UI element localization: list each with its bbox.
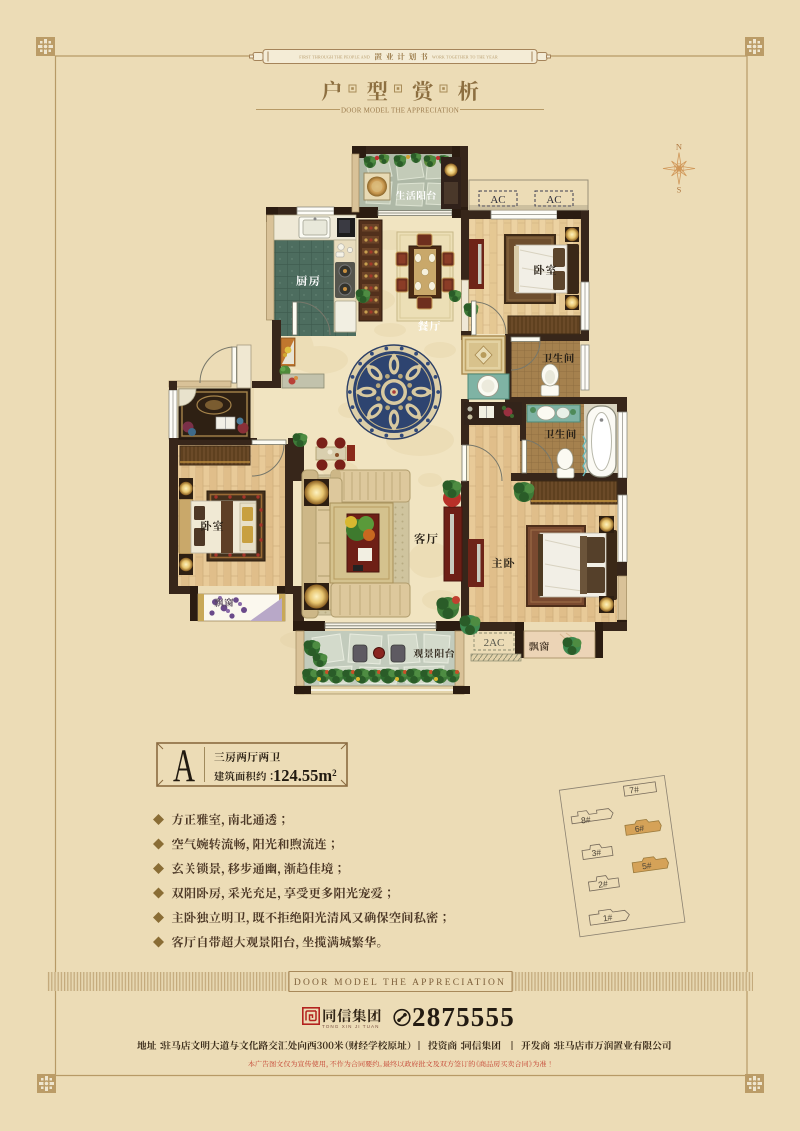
svg-text:8#: 8#	[580, 814, 591, 825]
svg-text:2#: 2#	[597, 878, 608, 889]
svg-text:2AC: 2AC	[484, 637, 505, 649]
svg-text:2875555: 2875555	[412, 1002, 515, 1032]
svg-text:A: A	[173, 740, 195, 792]
svg-text:124.55m2: 124.55m2	[273, 766, 337, 785]
svg-text:FIRST THROUGH THE PEOPLE AND: FIRST THROUGH THE PEOPLE AND	[299, 55, 370, 60]
svg-text:DOOR MODEL THE APPRECIATION: DOOR MODEL THE APPRECIATION	[341, 107, 459, 115]
svg-text:S: S	[677, 185, 682, 195]
svg-text:7#: 7#	[629, 784, 640, 795]
svg-text:DOOR MODEL THE APPRECIATION: DOOR MODEL THE APPRECIATION	[294, 978, 506, 988]
svg-text:5#: 5#	[641, 860, 652, 871]
svg-text:AC: AC	[490, 194, 505, 206]
svg-text:3#: 3#	[591, 847, 602, 858]
svg-text:N: N	[676, 142, 682, 152]
svg-text:AC: AC	[546, 194, 561, 206]
svg-text:TONG XIN JI TUAN: TONG XIN JI TUAN	[322, 1024, 379, 1029]
svg-text:6#: 6#	[634, 823, 645, 834]
svg-text:1#: 1#	[602, 912, 613, 923]
svg-text:WORK TOGETHER TO THE YEAR: WORK TOGETHER TO THE YEAR	[432, 55, 498, 60]
